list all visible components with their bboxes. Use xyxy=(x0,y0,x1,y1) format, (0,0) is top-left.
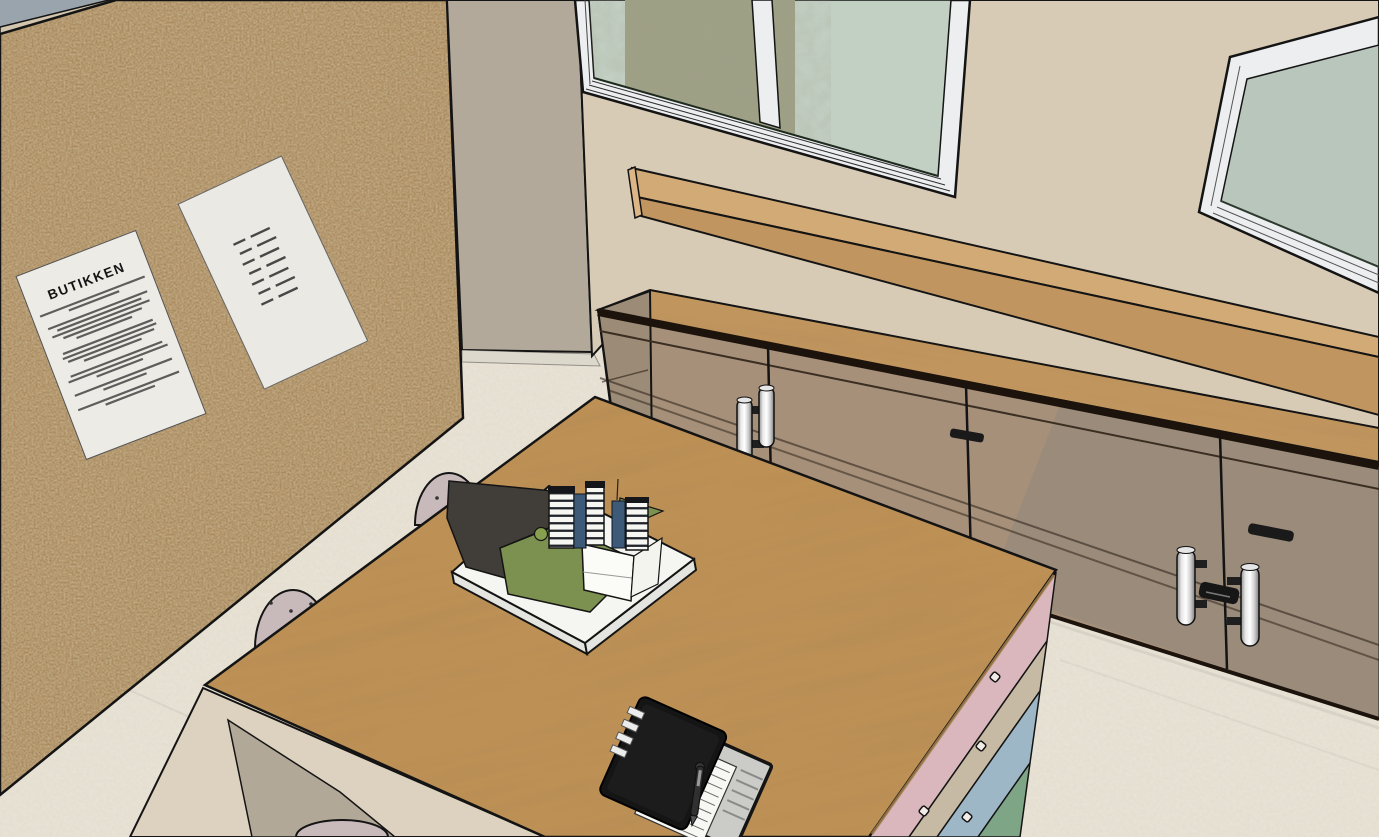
model-roof xyxy=(625,497,649,503)
model-roof xyxy=(548,486,575,493)
model-tower-slab xyxy=(612,501,625,548)
handle-arm xyxy=(1227,577,1241,585)
interior-3d-render: BUTIKKEN xyxy=(0,0,1379,837)
cabinet-handle xyxy=(1177,549,1195,625)
scene-canvas: BUTIKKEN xyxy=(0,0,1379,837)
model-tower-slab xyxy=(574,494,586,548)
cabinet-handle xyxy=(1241,566,1259,646)
model-tower xyxy=(586,487,604,545)
cabinet-handle xyxy=(759,387,774,447)
partition-wall xyxy=(447,0,592,352)
handle-cap xyxy=(759,385,774,391)
stool-tuft xyxy=(435,496,439,500)
model-roof xyxy=(585,481,605,488)
stool-tuft xyxy=(289,609,293,613)
model-tower xyxy=(549,492,574,548)
handle-cap xyxy=(737,397,752,403)
model-bush xyxy=(535,528,548,541)
model-tower xyxy=(626,502,648,550)
handle-arm xyxy=(1227,617,1241,625)
handle-cap xyxy=(1241,564,1259,571)
stool-tuft xyxy=(269,601,273,605)
handle-cap xyxy=(1177,547,1195,554)
